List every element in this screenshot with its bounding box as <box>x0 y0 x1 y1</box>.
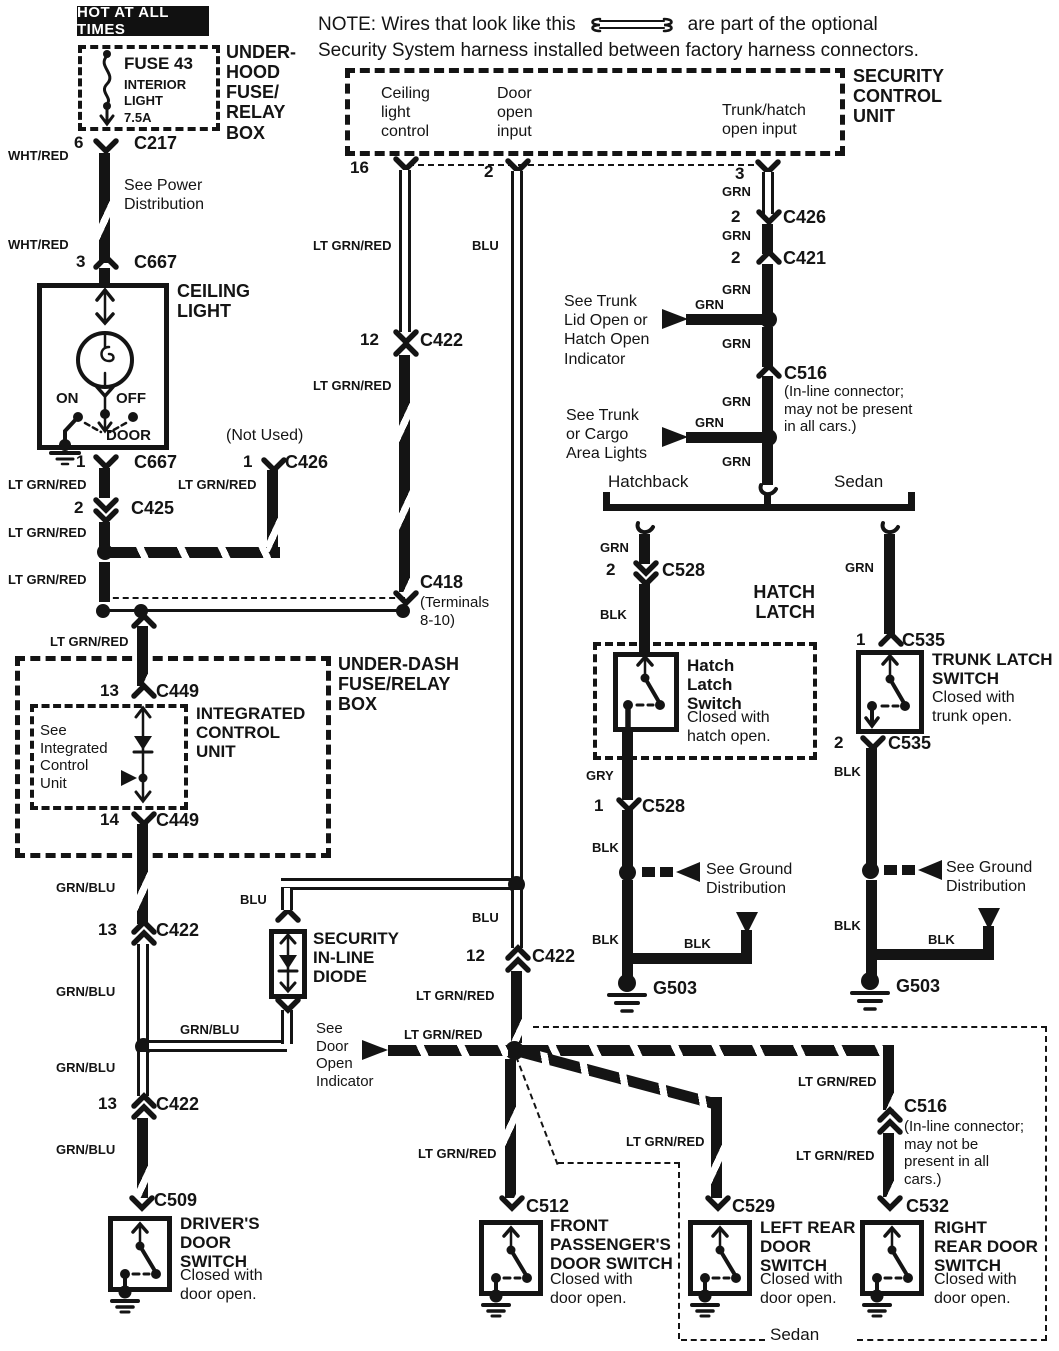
switch-on-label: ON <box>56 391 79 408</box>
wire-grn-sedan <box>884 534 895 634</box>
wire-color-blk-s3: BLK <box>928 932 955 948</box>
label-c667-top: C667 <box>134 252 177 272</box>
arrow-left-icon-2 <box>918 860 942 880</box>
label-c512: C512 <box>526 1196 569 1216</box>
note-line1: NOTE: Wires that look like this are part… <box>318 12 878 38</box>
wire-ltgrnred-to-c418 <box>399 355 410 592</box>
wire-gry <box>622 732 633 800</box>
wire-grn-hatch <box>639 534 650 564</box>
hatch-latch-switch-desc: Closed with hatch open. <box>687 708 771 746</box>
connector-c532-icon <box>877 1196 903 1210</box>
not-used-label: (Not Used) <box>226 426 303 445</box>
wire-color-ltgrnred-6: LT GRN/RED <box>313 378 391 394</box>
connector-c529-icon <box>705 1196 731 1210</box>
underhood-box-label: UNDER- HOOD FUSE/ RELAY BOX <box>226 42 296 143</box>
label-c535: C535 <box>902 630 945 650</box>
see-power-distribution: See Power Distribution <box>124 176 204 214</box>
wire-color-ltgrnred-4: LT GRN/RED <box>8 572 86 588</box>
ground-ref-dash1 <box>642 867 655 877</box>
wire-grn-branch2 <box>686 432 762 443</box>
icu-label: INTEGRATED CONTROL UNIT <box>196 704 305 761</box>
arrow-right-icon-2 <box>662 309 688 329</box>
wire-opt-blu-up <box>281 888 293 910</box>
wire-color-ltgrnred-2: LT GRN/RED <box>8 525 86 541</box>
wire-ltgrnred-right <box>520 1045 892 1056</box>
wire-color-grnblu-5: GRN/BLU <box>56 1142 115 1158</box>
label-c509: C509 <box>154 1190 197 1210</box>
see-ground-distribution-sedan: See Ground Distribution <box>946 858 1032 896</box>
wire-color-grnblu-1: GRN/BLU <box>56 880 115 896</box>
wire-grnblu-1 <box>137 824 148 924</box>
pin-1-c528: 1 <box>594 796 603 815</box>
hot-at-all-times-badge: HOT AT ALL TIMES <box>77 6 209 36</box>
trunk-hatch-open-input-label: Trunk/hatch open input <box>722 101 806 139</box>
switch-off-label: OFF <box>116 391 146 408</box>
wire-color-grn-1: GRN <box>722 184 751 200</box>
wire-color-grnblu-2: GRN/BLU <box>56 984 115 1000</box>
pin-1-c535: 1 <box>856 630 865 649</box>
ceiling-light-label: CEILING LIGHT <box>177 281 250 321</box>
wire-ltgrnred-c426 <box>267 470 278 552</box>
connector-diode-bottom-icon <box>275 998 301 1012</box>
wire-opt-blu <box>511 171 523 879</box>
wire-grn-4 <box>762 376 773 432</box>
scu-pin-row-dashed-link <box>408 164 764 166</box>
wire-opt-grnblu-1 <box>137 944 149 1042</box>
wire-color-ltgrnred-1: LT GRN/RED <box>8 477 86 493</box>
label-c516-lower: C516 <box>904 1096 947 1116</box>
wire-color-blu-1: BLU <box>472 238 499 254</box>
connector-c509-icon <box>129 1196 155 1210</box>
connector-c512-icon <box>499 1196 525 1210</box>
security-diode-icon <box>271 931 305 997</box>
connector-c426-icon <box>756 210 782 224</box>
wire-opt-grnblu-branch <box>149 1040 287 1052</box>
front-passenger-door-switch-name: FRONT PASSENGER'S DOOR SWITCH <box>550 1216 673 1273</box>
splice-dot-4 <box>396 604 410 618</box>
hatchback-label: Hatchback <box>608 472 688 492</box>
pin-6: 6 <box>74 133 83 152</box>
trunk-latch-switch-icon <box>856 650 924 734</box>
wire-color-grn-b2: GRN <box>695 415 724 431</box>
wire-ltgrnred-c529 <box>711 1097 722 1198</box>
fuse-icon <box>92 46 122 130</box>
wire-blk-sedan-horiz <box>871 949 994 960</box>
wire-color-blu-3: BLU <box>240 892 267 908</box>
splice-dot-sedan-gnd <box>862 862 879 879</box>
wire-color-grn-2: GRN <box>722 228 751 244</box>
front-passenger-door-switch-desc: Closed with door open. <box>550 1270 633 1308</box>
wire-color-wht-red-1: WHT/RED <box>8 148 69 164</box>
split-bracket <box>603 504 915 511</box>
pin-16: 16 <box>350 158 369 177</box>
connector-c667-lower-icon <box>93 455 119 469</box>
wire-color-ltgrnred-10: LT GRN/RED <box>796 1148 874 1164</box>
label-c425: C425 <box>131 498 174 518</box>
wire-wht-red <box>99 153 110 263</box>
pin-1-c667: 1 <box>76 452 85 471</box>
note-text-pre: NOTE: Wires that look like this <box>318 12 576 38</box>
connector-c535-icon <box>878 632 904 646</box>
pin-3: 3 <box>76 252 85 271</box>
wire-ltgrnred-c532 <box>883 1133 894 1197</box>
label-c516-lower-sub: (In-line connector; may not be present i… <box>904 1118 1024 1189</box>
wire-blk-hatch2 <box>622 810 633 870</box>
sedan-boundary-left <box>678 1162 680 1339</box>
pin-2-c535: 2 <box>834 733 843 752</box>
wire-ltgrnred-c512 <box>505 1059 516 1198</box>
arrow-right-icon-3 <box>662 427 688 447</box>
wire-color-grn-h: GRN <box>600 540 629 556</box>
label-c528-lower: C528 <box>642 796 685 816</box>
sedan-boundary-diag <box>515 1056 558 1165</box>
wire-ltgrnred-c516 <box>883 1045 894 1110</box>
wire-grn-2 <box>762 264 773 314</box>
label-c422-blu: C422 <box>532 946 575 966</box>
switch-door-label: DOOR <box>106 428 151 445</box>
wire-color-grn-3: GRN <box>722 282 751 298</box>
pin-2-c528: 2 <box>606 560 615 579</box>
label-c529: C529 <box>732 1196 775 1216</box>
pin-14-c449: 14 <box>100 810 119 829</box>
optional-harness-dashed-link <box>103 597 405 599</box>
wire-color-blk-h4: BLK <box>684 936 711 952</box>
label-c532: C532 <box>906 1196 949 1216</box>
ground-ref-dash2 <box>660 867 673 877</box>
note-text-post: are part of the optional <box>688 12 878 38</box>
wire-opt-grn <box>762 172 774 214</box>
hatch-latch-switch-icon <box>613 652 679 734</box>
sedan-boundary-right <box>1045 1026 1047 1341</box>
wire-color-ltgrnred-13: LT GRN/RED <box>50 634 128 650</box>
label-c449: C449 <box>156 681 199 701</box>
connector-c422-12-icon2 <box>393 342 419 356</box>
label-g503-sedan: G503 <box>896 976 940 996</box>
pin-12b: 12 <box>466 946 485 965</box>
label-c449-lower: C449 <box>156 810 199 830</box>
trunk-latch-switch-name: TRUNK LATCH SWITCH <box>932 650 1053 688</box>
wire-color-blk-h1: BLK <box>600 607 627 623</box>
splice-dot-2 <box>96 604 110 618</box>
splice-dot-hatch-gnd <box>619 864 636 881</box>
wire-color-grn-4: GRN <box>722 336 751 352</box>
split-bracket-left-cap <box>603 492 610 508</box>
wire-color-ltgrnred-9: LT GRN/RED <box>798 1074 876 1090</box>
ground-dot-hatch <box>618 974 636 992</box>
ground-icon-hatch <box>605 992 649 1016</box>
label-g503-hatch: G503 <box>653 978 697 998</box>
label-c516-sub: (In-line connector; may not be present i… <box>784 383 912 436</box>
wire-ltgrnred-branch <box>108 547 280 558</box>
split-bracket-center-tick <box>764 495 771 506</box>
wire-color-blk-h2: BLK <box>592 840 619 856</box>
wire-color-blk-s1: BLK <box>834 764 861 780</box>
wire-color-blu-2: BLU <box>472 910 499 926</box>
label-c217: C217 <box>134 133 177 153</box>
wire-opt-ltgrnred <box>399 170 411 332</box>
trunk-latch-switch-desc: Closed with trunk open. <box>932 688 1015 726</box>
security-diode-label: SECURITY IN-LINE DIODE <box>313 929 399 986</box>
hatch-latch-switch-name: Hatch Latch Switch <box>687 656 742 713</box>
connector-c217-icon <box>93 139 119 153</box>
wire-blk-from-arrow-sedan <box>983 926 994 954</box>
icu-diode-icon <box>111 702 175 810</box>
ceiling-light-control-label: Ceiling light control <box>381 84 430 142</box>
connector-c421-icon <box>756 250 782 264</box>
ground-icon-sedan <box>848 990 892 1014</box>
ground-dot-sedan <box>861 972 879 990</box>
wire-blk-sedan2 <box>866 880 877 976</box>
left-rear-door-switch-name: LEFT REAR DOOR SWITCH <box>760 1218 855 1275</box>
connector-c425-icon2 <box>93 509 119 523</box>
label-c667-lower: C667 <box>134 452 177 472</box>
wire-color-gry: GRY <box>586 768 614 784</box>
label-c422-top: C422 <box>420 330 463 350</box>
wire-color-grnblu-3: GRN/BLU <box>180 1022 239 1038</box>
wire-color-grn-b1: GRN <box>695 297 724 313</box>
pin-1-c426: 1 <box>243 452 252 471</box>
connector-c422-12b-icon2 <box>505 958 531 972</box>
see-ground-distribution-hatch: See Ground Distribution <box>706 860 792 898</box>
pin-12-c422: 12 <box>360 330 379 349</box>
wire-ltgrnred-to-indicator <box>388 1045 508 1056</box>
security-control-unit-label: SECURITY CONTROL UNIT <box>853 66 944 126</box>
pin-13-c449: 13 <box>100 681 119 700</box>
left-rear-door-switch-icon <box>686 1222 754 1318</box>
label-c421: C421 <box>783 248 826 268</box>
drivers-door-switch-icon <box>106 1218 174 1314</box>
sedan-boundary-mid <box>558 1162 680 1164</box>
pin-2: 2 <box>484 162 493 181</box>
wiring-diagram-canvas: NOTE: Wires that look like this are part… <box>0 0 1059 1351</box>
wire-color-grn-6: GRN <box>722 454 751 470</box>
wire-grn-5 <box>762 443 773 485</box>
wire-grnblu-2 <box>137 1118 148 1198</box>
wire-ltgrnred-center <box>511 971 522 1043</box>
wire-opt-grnblu-2 <box>137 1052 149 1096</box>
connector-c422-13-icon2 <box>131 931 157 945</box>
front-passenger-door-switch-icon <box>477 1222 545 1318</box>
pin-2-c421: 2 <box>731 248 740 267</box>
label-c418-sub: (Terminals 8-10) <box>420 594 489 629</box>
label-c426-notused: C426 <box>285 452 328 472</box>
connector-pin16-icon <box>393 157 419 171</box>
pin-13-c422: 13 <box>98 920 117 939</box>
door-open-input-label: Door open input <box>497 84 533 142</box>
wire-opt-blu-branch <box>281 878 518 890</box>
wire-color-ltgrnred-8: LT GRN/RED <box>404 1027 482 1043</box>
connector-diode-top-icon <box>275 908 301 922</box>
wire-color-blk-h3: BLK <box>592 932 619 948</box>
optional-harness-wire-icon <box>584 15 680 35</box>
ground-ref-dash4 <box>902 865 915 875</box>
wire-color-ltgrnred-11: LT GRN/RED <box>626 1134 704 1150</box>
underdash-box-label: UNDER-DASH FUSE/RELAY BOX <box>338 654 459 714</box>
label-c516: C516 <box>784 363 827 383</box>
wire-color-grnblu-4: GRN/BLU <box>56 1060 115 1076</box>
connector-c418-icon <box>393 591 419 605</box>
label-c426: C426 <box>783 207 826 227</box>
wire-color-grn-s: GRN <box>845 560 874 576</box>
splice-bus-wire <box>103 609 405 612</box>
right-rear-door-switch-desc: Closed with door open. <box>934 1270 1017 1308</box>
wire-color-wht-red-2: WHT/RED <box>8 237 69 253</box>
sedan-boundary-top <box>533 1026 1047 1028</box>
sedan-boundary-label: Sedan <box>770 1325 819 1345</box>
pin-13-c422b: 13 <box>98 1094 117 1113</box>
pin-3-scu: 3 <box>735 164 744 183</box>
splice-dot-trunk1 <box>760 311 777 328</box>
hatch-latch-label: HATCH LATCH <box>698 582 815 622</box>
note-line2: Security System harness installed betwee… <box>318 38 919 64</box>
wire-grn-branch1 <box>686 314 762 325</box>
fuse-sublabel: INTERIOR LIGHT 7.5A <box>124 77 186 126</box>
wire-color-ltgrnred-3: LT GRN/RED <box>178 477 256 493</box>
wire-color-blk-s2: BLK <box>834 918 861 934</box>
wire-opt-blu-2 <box>511 890 523 948</box>
fuse-label: FUSE 43 <box>124 54 193 73</box>
wire-ltgrnred-1 <box>99 468 110 498</box>
right-rear-door-switch-name: RIGHT REAR DOOR SWITCH <box>934 1218 1038 1275</box>
sedan-label: Sedan <box>834 472 883 492</box>
label-c528: C528 <box>662 560 705 580</box>
label-c422-13: C422 <box>156 920 199 940</box>
wire-blk-hatch-horiz <box>628 953 752 964</box>
wire-blk-from-arrow-hatch <box>741 930 752 958</box>
label-c418: C418 <box>420 572 463 592</box>
wire-color-ltgrnred-12: LT GRN/RED <box>418 1146 496 1162</box>
drivers-door-switch-name: DRIVER'S DOOR SWITCH <box>180 1214 260 1271</box>
wire-blk-sedan1 <box>866 748 877 866</box>
connector-c422-13b-icon2 <box>131 1105 157 1119</box>
wire-color-ltgrnred-7: LT GRN/RED <box>416 988 494 1004</box>
wire-ltgrnred-4 <box>99 562 110 602</box>
connector-c449-icon <box>131 684 157 698</box>
connector-c516-lower-icon2 <box>877 1120 903 1134</box>
wire-start-hook-icon <box>634 521 656 535</box>
label-c422-13b: C422 <box>156 1094 199 1114</box>
wire-grn-3 <box>762 327 773 367</box>
arrow-left-icon <box>676 862 700 882</box>
see-trunk-lid-open: See Trunk Lid Open or Hatch Open Indicat… <box>564 292 649 369</box>
label-c535-lower: C535 <box>888 733 931 753</box>
see-integrated-control-unit: See Integrated Control Unit <box>40 722 108 793</box>
drivers-door-switch-desc: Closed with door open. <box>180 1266 263 1304</box>
right-rear-door-switch-icon <box>858 1222 926 1318</box>
connector-c667-icon <box>93 255 119 269</box>
see-door-open-indicator: See Door Open Indicator <box>316 1020 374 1091</box>
split-bracket-right-cap <box>908 492 915 508</box>
ground-ref-dash3 <box>884 865 897 875</box>
wire-color-grn-5: GRN <box>722 394 751 410</box>
see-trunk-cargo-lights: See Trunk or Cargo Area Lights <box>566 406 647 464</box>
sedan-boundary-bottom2 <box>857 1339 1047 1341</box>
pin-2-c425: 2 <box>74 498 83 517</box>
wire-opt-grnblu-up <box>281 1010 293 1044</box>
pin-2-c426b: 2 <box>731 207 740 226</box>
left-rear-door-switch-desc: Closed with door open. <box>760 1270 843 1308</box>
wire-color-ltgrnred-5: LT GRN/RED <box>313 238 391 254</box>
sedan-boundary-bottom1 <box>681 1339 765 1341</box>
connector-c426-notused-icon <box>261 458 287 472</box>
wire-start-hook-icon-2 <box>879 521 901 535</box>
